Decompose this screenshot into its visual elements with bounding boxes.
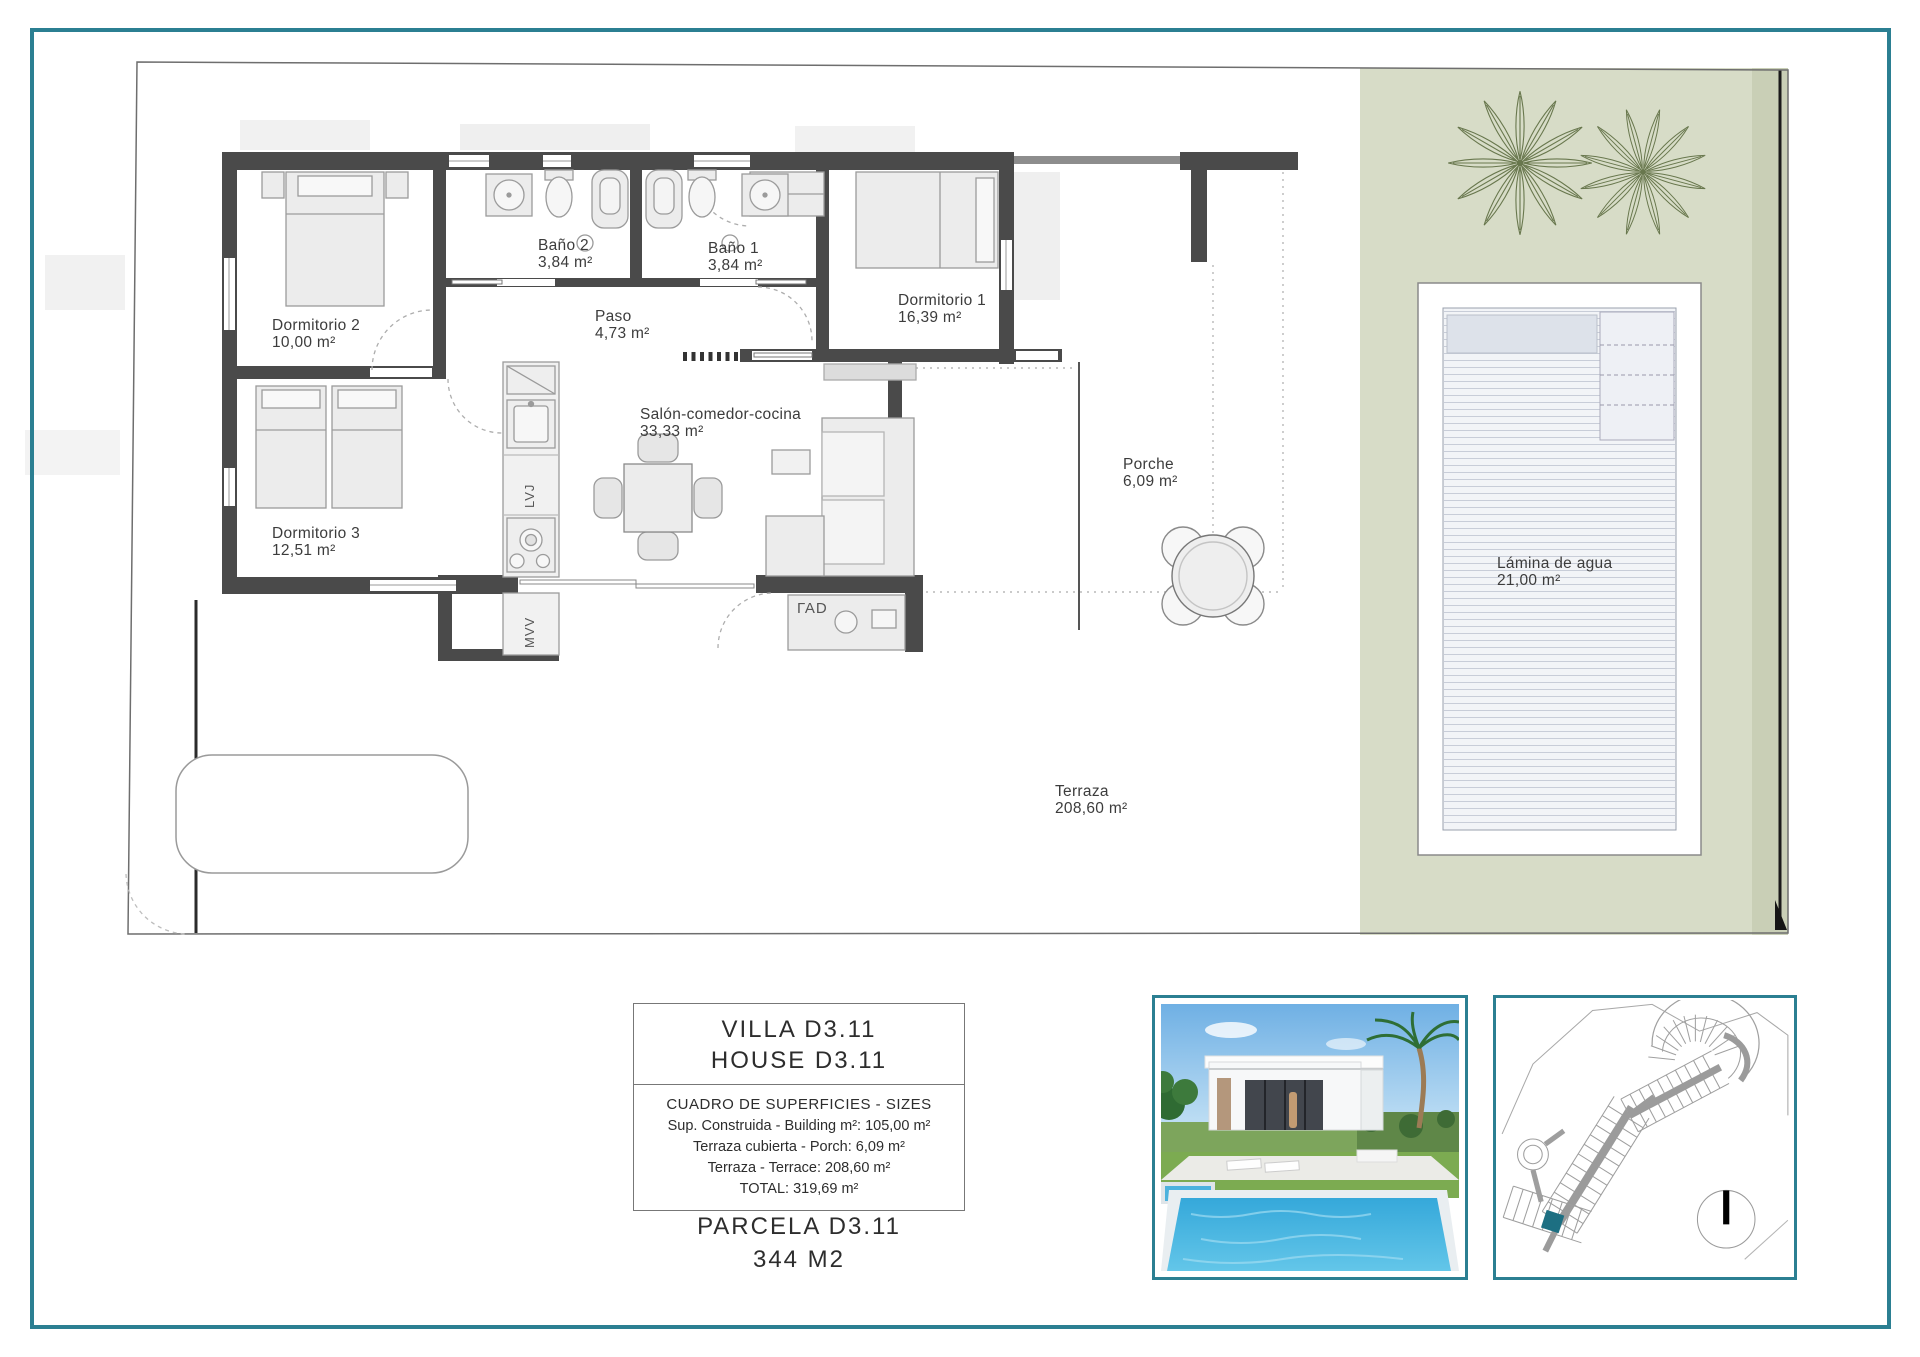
house-title: HOUSE D3.11 (634, 1045, 964, 1076)
room-label-terraza: Terraza208,60 m² (1055, 783, 1128, 817)
parcel-line2: 344 M2 (633, 1243, 965, 1276)
villa-render-art (1161, 1004, 1459, 1271)
villa-render-photo (1152, 995, 1468, 1280)
microwave-label: MVV (522, 617, 537, 648)
site-location-map (1493, 995, 1797, 1280)
title-block: VILLA D3.11 HOUSE D3.11 CUADRO DE SUPERF… (633, 1003, 965, 1211)
sizes-table-header: CUADRO DE SUPERFICIES - SIZES (636, 1094, 962, 1116)
dishwasher-label: LVJ (522, 484, 537, 508)
car-outline (176, 755, 468, 873)
room-label-porche: Porche6,09 m² (1123, 456, 1178, 490)
room-label-salon: Salón-comedor-cocina33,33 m² (640, 406, 801, 440)
porch-table (1162, 527, 1264, 625)
room-label-lamina-de-agua: Lámina de agua21,00 m² (1497, 555, 1612, 589)
room-label-bano-2: Baño 23,84 m² (538, 237, 593, 271)
sizes-row-terrace: Terraza - Terrace: 208,60 m² (636, 1158, 962, 1179)
sizes-row-porch: Terraza cubierta - Porch: 6,09 m² (636, 1137, 962, 1158)
vent-row (683, 352, 738, 361)
site-map-art (1498, 1000, 1792, 1275)
parcel-label: PARCELA D3.11 344 M2 (633, 1210, 965, 1276)
room-label-bano-1: Baño 13,84 m² (708, 240, 763, 274)
room-label-dormitorio-3: Dormitorio 312,51 m² (272, 525, 360, 559)
room-label-paso: Paso4,73 m² (595, 308, 650, 342)
parcel-line1: PARCELA D3.11 (633, 1210, 965, 1243)
terrace-cabinet-label: ΓΑD (797, 600, 828, 617)
sizes-row-building: Sup. Construida - Building m²: 105,00 m² (636, 1116, 962, 1137)
north-compass-icon (1697, 1190, 1755, 1248)
title-block-header: VILLA D3.11 HOUSE D3.11 (634, 1004, 964, 1085)
villa-title: VILLA D3.11 (634, 1014, 964, 1045)
plan-sheet: { "sheet": {"type": "architectural floor… (0, 0, 1920, 1357)
sizes-table: CUADRO DE SUPERFICIES - SIZES Sup. Const… (634, 1085, 964, 1210)
sizes-row-total: TOTAL: 319,69 m² (636, 1179, 962, 1200)
room-label-dormitorio-1: Dormitorio 116,39 m² (898, 292, 986, 326)
room-label-dormitorio-2: Dormitorio 210,00 m² (272, 317, 360, 351)
